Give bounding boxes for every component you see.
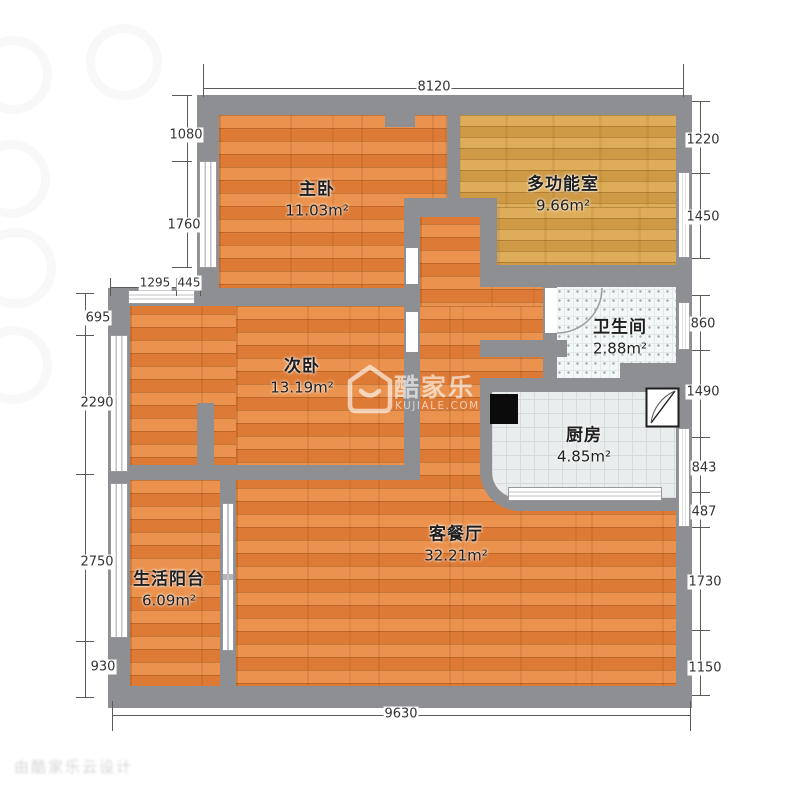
dim-label: 445	[177, 276, 202, 291]
wall-multi-bottom	[485, 265, 692, 287]
room-label-kitchen: 厨房 4.85m²	[557, 426, 611, 467]
watermark-footer-text: 由酷家乐云设计	[14, 756, 133, 777]
watermark-circle-icon	[0, 228, 56, 308]
room-label-living-dining: 客餐厅 32.21m²	[424, 525, 488, 566]
dim-tick	[172, 95, 192, 96]
room-label-bathroom: 卫生间 2.88m²	[593, 318, 647, 359]
dim-label: 1450	[685, 210, 720, 225]
dim-tick	[76, 293, 94, 294]
watermark-site: KUJIALE.COM	[395, 400, 480, 412]
dim-tick	[76, 697, 94, 698]
wall-second-stub	[197, 403, 214, 465]
watermark-circle-icon	[86, 24, 162, 100]
dim-label: 1295	[139, 276, 172, 291]
dim-line-left-upper	[187, 95, 188, 268]
dim-line-right-lower	[700, 295, 701, 695]
room-label-multi-function: 多功能室 9.66m²	[527, 175, 599, 216]
door-master-bedroom	[406, 248, 418, 284]
entrance-door-icon	[645, 387, 681, 429]
wall-top	[197, 95, 692, 115]
dim-label: 2290	[79, 396, 114, 411]
dim-tick	[76, 641, 94, 642]
dim-label: 860	[690, 317, 717, 332]
dim-tick	[172, 267, 192, 268]
watermark-circle-icon	[0, 140, 50, 218]
wall-living-stub	[480, 340, 567, 357]
dim-label-bottom: 9630	[383, 707, 418, 722]
wall-master-multi	[447, 115, 460, 198]
dim-tick	[692, 630, 710, 631]
window-kitchen-right	[678, 428, 690, 527]
wall-bathroom-step	[620, 363, 678, 380]
dim-tick	[690, 701, 691, 731]
wall-second-bottom	[108, 465, 420, 480]
window-kitchen-bottom	[508, 487, 662, 501]
window-second-top	[128, 290, 195, 304]
dim-label: 1220	[685, 133, 720, 148]
dim-label: 1150	[687, 661, 722, 676]
window-bathroom-right	[678, 302, 690, 350]
dim-label: 2750	[79, 555, 114, 570]
dim-tick	[692, 101, 710, 102]
dim-tick	[692, 527, 710, 528]
dim-tick	[692, 492, 710, 493]
dim-label: 930	[90, 660, 117, 675]
dim-tick	[692, 258, 710, 259]
dim-label: 695	[85, 311, 112, 326]
dim-tick	[203, 64, 204, 97]
dim-tick	[112, 701, 113, 731]
dim-tick	[692, 295, 710, 296]
dim-tick	[692, 350, 710, 351]
kujiale-house-icon	[346, 364, 394, 414]
dim-label: 487	[691, 505, 718, 520]
dim-line-right-upper	[700, 101, 701, 258]
kitchen-counter-block	[490, 394, 518, 424]
dim-label: 1730	[687, 575, 722, 590]
watermark-circle-icon	[0, 36, 52, 114]
wall-bottom	[108, 686, 692, 708]
door-second-bedroom	[406, 312, 418, 352]
dim-tick	[692, 695, 710, 696]
dim-label: 1490	[685, 385, 720, 400]
room-label-master-bedroom: 主卧 11.03m²	[285, 180, 349, 221]
dim-tick	[172, 161, 192, 162]
watermark-circle-icon	[0, 326, 52, 404]
window-master-left	[199, 161, 217, 268]
dim-tick	[692, 437, 710, 438]
dim-line-left-lower	[85, 474, 86, 697]
dim-label: 843	[691, 461, 718, 476]
door-bathroom-leaf	[545, 288, 557, 333]
door-balcony-sliding	[222, 503, 234, 651]
dim-label-top: 8120	[416, 80, 451, 95]
dim-tick	[76, 335, 94, 336]
room-label-balcony: 生活阳台 6.09m²	[133, 570, 205, 611]
dim-tick	[683, 64, 684, 97]
dim-label: 1080	[168, 128, 203, 143]
floor-plan-canvas: 主卧 11.03m² 多功能室 9.66m² 次卧 13.19m² 卫生间 2.…	[0, 0, 800, 800]
dim-tick	[110, 278, 111, 296]
wall-top-notch	[385, 115, 415, 127]
room-label-second-bedroom: 次卧 13.19m²	[270, 357, 334, 398]
dim-tick	[692, 173, 710, 174]
watermark-brand: 酷家乐	[394, 368, 475, 404]
dim-label: 1760	[166, 218, 201, 233]
